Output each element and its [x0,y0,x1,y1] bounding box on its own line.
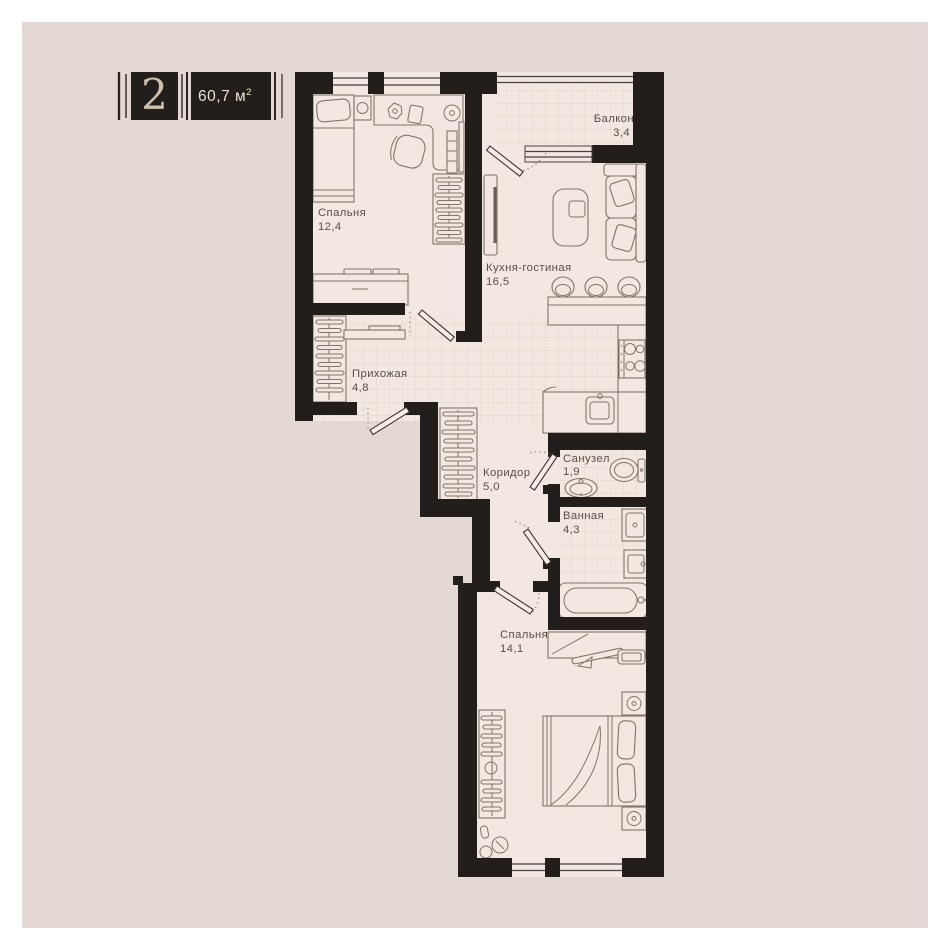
apartment-area: 60,7 м2 [198,87,252,105]
floorplan-page: 2 60,7 м2 [0,0,950,950]
apartment-number: 2 [141,70,168,119]
balcony-window [525,146,592,162]
room-label-hallway: Прихожая [352,368,408,380]
pillow [617,721,636,760]
tv-icon [494,187,497,243]
stove [619,340,645,378]
area-superscript: 2 [246,87,252,98]
room-label-bathroom: Ванная [563,510,604,522]
kitchen-tiles [540,327,620,392]
room-label-wc: Санузел [563,453,610,465]
room-area-bedroom-2: 14,1 [500,643,524,655]
room-area-wc: 1,9 [563,466,580,478]
window [384,72,440,94]
room-label-bedroom-1: Спальня [318,207,366,219]
washing-machine [622,509,648,541]
hallway-wardrobe [313,316,346,402]
bathroom-sink [624,550,648,578]
pillow [617,764,636,803]
room-area-hallway: 4,8 [352,382,369,394]
corridor-wardrobe [440,408,477,500]
wc-sink [565,479,597,498]
room-area-bathroom: 4,3 [563,524,580,536]
sofa [604,164,646,262]
nightstand [622,692,646,715]
room-area-bedroom-1: 12,4 [318,221,342,233]
bar-stools [552,277,640,297]
kitchen-sink [586,394,614,424]
wardrobe [433,174,465,244]
nightstand [622,807,646,830]
tablet [408,105,424,124]
window [333,72,368,94]
bar-counter [548,297,646,325]
pillow [316,99,351,123]
bathtub [558,583,648,618]
room-label-corridor: Коридор [483,467,530,479]
dresser [313,269,408,305]
shelf [447,131,457,173]
console-shelf [344,330,405,339]
open-wardrobe [479,710,505,818]
window [560,858,622,877]
mirror [459,122,464,172]
area-value: 60,7 м [198,88,246,105]
toilet [610,459,645,483]
room-label-kitchen-living: Кухня-гостиная [486,262,572,274]
room-label-balcony: Балкон [594,113,634,125]
plan-badge: 2 60,7 м2 [119,70,282,120]
room-area-kitchen-living: 16,5 [486,276,510,288]
room-area-balcony: 3,4 [613,127,630,139]
floorplan-svg: 2 60,7 м2 [0,0,950,950]
window [512,858,545,877]
coffee-table [553,189,588,246]
room-label-bedroom-2: Спальня [500,629,548,641]
room-area-corridor: 5,0 [483,481,500,493]
